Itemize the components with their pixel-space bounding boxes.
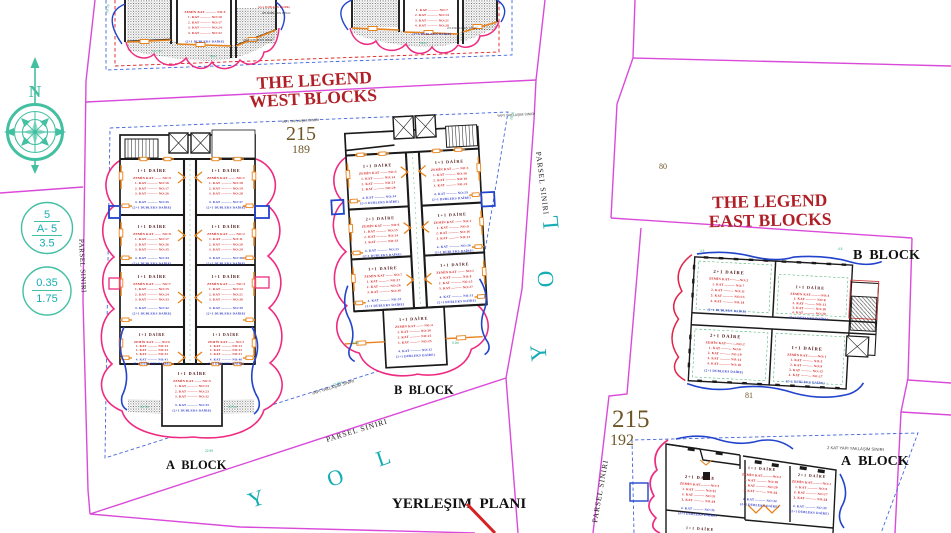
svg-text:ZEMİN KAT —— NO:4: ZEMİN KAT —— NO:4	[207, 281, 245, 286]
svg-text:1.75: 1.75	[36, 293, 57, 305]
svg-text:4. KAT ——— NO:42: 4. KAT ——— NO:42	[135, 306, 169, 310]
svg-text:4.5: 4.5	[700, 249, 705, 253]
svg-text:2/5 DUBLEKS 105m²: 2/5 DUBLEKS 105m²	[262, 11, 290, 15]
svg-text:3. KAT ——— NO:28: 3. KAT ——— NO:28	[209, 192, 243, 196]
svg-text:ZEMİN KAT —— NO:5: ZEMİN KAT —— NO:5	[173, 378, 211, 383]
svg-text:1. KAT ——— NO:14: 1. KAT ——— NO:14	[175, 384, 209, 388]
svg-text:(2+1 DUBLEKS DAİRE): (2+1 DUBLEKS DAİRE)	[186, 39, 225, 44]
svg-text:215: 215	[612, 406, 650, 433]
svg-text:2. KAT ——— NO:21: 2. KAT ——— NO:21	[209, 292, 243, 296]
svg-text:ZEMİN KAT —— NO:1: ZEMİN KAT —— NO:1	[207, 175, 245, 180]
svg-text:(2+1 DUBLEKS DAİRE): (2+1 DUBLEKS DAİRE)	[133, 205, 172, 210]
svg-text:4. KAT ——— NO:44: 4. KAT ——— NO:44	[135, 256, 169, 260]
svg-text:A- 5: A- 5	[37, 223, 57, 235]
svg-text:3. KAT ——— NO:31: 3. KAT ——— NO:31	[210, 352, 242, 356]
svg-text:5: 5	[44, 209, 50, 221]
svg-text:1. KAT ——— NO:7: 1. KAT ——— NO:7	[416, 8, 448, 12]
svg-text:1. KAT ——— NO:11: 1. KAT ——— NO:11	[209, 237, 243, 241]
svg-text:1+1 DAİRE: 1+1 DAİRE	[137, 168, 166, 173]
svg-text:10.7m²: 10.7m²	[152, 49, 161, 53]
svg-text:B BLOCK: B BLOCK	[853, 248, 920, 263]
svg-text:ZEMİN KAT —— NO:8: ZEMİN KAT —— NO:8	[133, 231, 171, 236]
svg-text:12m²: 12m²	[210, 54, 217, 58]
svg-text:4. KAT ——— NO:39: 4. KAT ——— NO:39	[209, 306, 243, 310]
svg-text:EAST BLOCKS: EAST BLOCKS	[709, 209, 832, 232]
svg-text:Y: Y	[525, 343, 551, 362]
svg-text:A BLOCK: A BLOCK	[841, 454, 909, 469]
svg-text:2/5 DUBLEKS 105m²: 2/5 DUBLEKS 105m²	[447, 26, 477, 30]
svg-text:1+1 DAİRE: 1+1 DAİRE	[211, 274, 240, 279]
svg-text:9.2m: 9.2m	[452, 341, 459, 345]
svg-text:3.5: 3.5	[39, 238, 54, 250]
svg-text:1+1 DAİRE: 1+1 DAİRE	[211, 168, 240, 173]
svg-text:3. KAT ——— NO:35: 3. KAT ——— NO:35	[135, 248, 169, 252]
svg-text:ZEMİN KAT —— NO:7: ZEMİN KAT —— NO:7	[133, 281, 171, 286]
svg-text:2. KAT ——— NO:26: 2. KAT ——— NO:26	[135, 242, 169, 246]
svg-text:4.5: 4.5	[838, 247, 843, 251]
svg-text:1+1 DAİRE: 1+1 DAİRE	[139, 332, 166, 337]
svg-text:ZEMİN KAT —— NO:9: ZEMİN KAT —— NO:9	[133, 175, 171, 180]
svg-text:O: O	[532, 270, 558, 289]
svg-text:3. KAT ——— NO:30: 3. KAT ——— NO:30	[209, 298, 243, 302]
svg-text:(2+1 DUBLEKS DAİRE): (2+1 DUBLEKS DAİRE)	[207, 261, 246, 266]
svg-text:L: L	[537, 214, 563, 230]
svg-text:80: 80	[659, 162, 667, 171]
svg-text:(2+1 DUBLEKS DAİRE): (2+1 DUBLEKS DAİRE)	[133, 311, 172, 316]
svg-text:4. KAT ——— NO:45: 4. KAT ——— NO:45	[135, 200, 169, 204]
svg-text:1+1 DAİRE: 1+1 DAİRE	[211, 224, 240, 229]
svg-text:3. KAT ——— NO:32: 3. KAT ——— NO:32	[175, 395, 209, 399]
svg-text:1+1 DAİRE: 1+1 DAİRE	[177, 371, 206, 376]
svg-text:(2+1 DUBLEKS DAİRE): (2+1 DUBLEKS DAİRE)	[133, 261, 172, 266]
svg-text:(2+1 DUBLEKS DAİRE): (2+1 DUBLEKS DAİRE)	[258, 4, 290, 9]
svg-text:3. KAT ——— NO:29: 3. KAT ——— NO:29	[209, 248, 243, 252]
svg-text:(2+1 DUBLEKS DAİRE): (2+1 DUBLEKS DAİRE)	[134, 361, 171, 366]
svg-text:1. KAT ——— NO:10: 1. KAT ——— NO:10	[188, 15, 222, 19]
svg-text:1+1 DAİRE: 1+1 DAİRE	[213, 332, 240, 337]
svg-text:22.99: 22.99	[205, 449, 213, 453]
svg-text:(2+1 DUBLEKS DAİRE): (2+1 DUBLEKS DAİRE)	[207, 205, 246, 210]
svg-text:12m²: 12m²	[420, 41, 427, 45]
svg-text:2. KAT ——— NO:19: 2. KAT ——— NO:19	[209, 186, 243, 190]
svg-text:1. KAT ——— NO:16: 1. KAT ——— NO:16	[135, 181, 169, 185]
svg-text:81: 81	[745, 391, 753, 400]
svg-text:1+1 DAİRE: 1+1 DAİRE	[137, 274, 166, 279]
svg-text:2. KAT ——— NO:17: 2. KAT ——— NO:17	[135, 186, 169, 190]
svg-text:3. KAT ——— NO:21: 3. KAT ——— NO:21	[415, 18, 449, 22]
svg-text:1. KAT ——— NO:17: 1. KAT ——— NO:17	[135, 237, 169, 241]
svg-text:YERLEŞIM PLANI: YERLEŞIM PLANI	[392, 496, 526, 512]
svg-text:ZEMİN KAT ——— NO:5: ZEMİN KAT ——— NO:5	[184, 9, 225, 14]
svg-text:10.7m: 10.7m	[228, 405, 237, 409]
svg-text:A BLOCK: A BLOCK	[166, 458, 227, 472]
svg-text:2. KAT ——— NO:23: 2. KAT ——— NO:23	[175, 389, 209, 393]
svg-text:2. KAT ——— NO:24: 2. KAT ——— NO:24	[135, 292, 169, 296]
svg-text:9.2m: 9.2m	[352, 341, 359, 345]
svg-text:2. KAT ——— NO:17: 2. KAT ——— NO:17	[188, 20, 222, 24]
svg-text:4. KAT ——— NO:37: 4. KAT ——— NO:37	[209, 200, 243, 204]
svg-text:3. KAT ——— NO:24: 3. KAT ——— NO:24	[188, 26, 222, 30]
svg-text:4. KAT ——— NO:32: 4. KAT ——— NO:32	[188, 31, 222, 35]
svg-text:189: 189	[292, 142, 310, 156]
svg-text:0.35: 0.35	[36, 277, 57, 289]
svg-text:4. KAT ——— NO:28: 4. KAT ——— NO:28	[415, 24, 449, 28]
svg-text:(2+1 DUBLEKS DAİRE): (2+1 DUBLEKS DAİRE)	[173, 408, 212, 413]
svg-text:4. KAT ——— NO:38: 4. KAT ——— NO:38	[209, 256, 243, 260]
svg-text:4. KAT ——— NO:43: 4. KAT ——— NO:43	[175, 403, 209, 407]
svg-text:1. KAT ——— NO:15: 1. KAT ——— NO:15	[135, 287, 169, 291]
svg-text:3. KAT ——— NO:33: 3. KAT ——— NO:33	[135, 298, 169, 302]
svg-text:N: N	[29, 82, 42, 101]
svg-text:(2+1 DUBLEKS DAİRE): (2+1 DUBLEKS DAİRE)	[207, 311, 246, 316]
svg-text:2. KAT ——— NO:14: 2. KAT ——— NO:14	[415, 13, 449, 17]
svg-text:B BLOCK: B BLOCK	[394, 383, 454, 397]
svg-text:10.7m: 10.7m	[140, 405, 149, 409]
svg-text:(2+1 DUBLEKS DAİRE): (2+1 DUBLEKS DAİRE)	[208, 361, 245, 366]
svg-text:(2+1 DUBLEKS DAİRE): (2+1 DUBLEKS DAİRE)	[413, 31, 452, 36]
svg-text:2/5 DUBLEKS 105m²: 2/5 DUBLEKS 105m²	[243, 38, 273, 42]
svg-text:3. KAT ——— NO:32: 3. KAT ——— NO:32	[136, 352, 168, 356]
svg-text:ZEMİN KAT —— NO:2: ZEMİN KAT —— NO:2	[207, 231, 245, 236]
svg-text:2. KAT ——— NO:20: 2. KAT ——— NO:20	[209, 242, 243, 246]
svg-text:3. KAT ——— NO:26: 3. KAT ——— NO:26	[135, 192, 169, 196]
svg-text:1. KAT ——— NO:18: 1. KAT ——— NO:18	[209, 181, 243, 185]
svg-text:1. KAT ——— NO:12: 1. KAT ——— NO:12	[209, 287, 243, 291]
svg-text:192: 192	[610, 432, 634, 449]
svg-text:1+1 DAİRE: 1+1 DAİRE	[137, 224, 166, 229]
